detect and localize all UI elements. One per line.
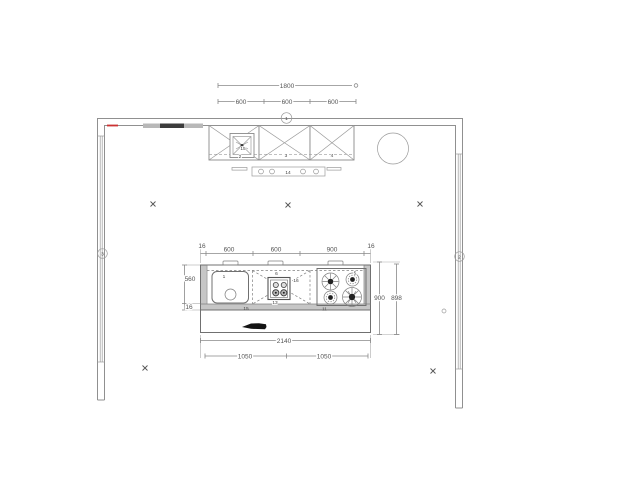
dim-text-600-b: 600: [282, 99, 293, 106]
upper-cabinet-row[interactable]: 15 2 3 4 14: [209, 126, 354, 177]
mid-unit-number: 6: [275, 271, 278, 277]
spot-cross[interactable]: [151, 202, 156, 207]
dial-center: [283, 292, 285, 294]
wall-1-number: 1: [285, 116, 288, 122]
mid-appliance-symbol[interactable]: [268, 278, 290, 300]
hood-knob: [259, 169, 264, 174]
sink[interactable]: 1: [212, 272, 249, 304]
worktop-left-number: 15: [243, 306, 249, 312]
under-cabinet-light-right[interactable]: [327, 168, 341, 171]
cooktop[interactable]: 5: [317, 269, 366, 307]
cabinet-3-number: 4: [331, 153, 334, 159]
wall-3-number: 3: [101, 252, 104, 258]
burner-center: [328, 279, 334, 285]
cabinet-widths-dimension[interactable]: 600 600 600: [218, 99, 356, 106]
spot-cross[interactable]: [143, 366, 148, 371]
drawer-handle[interactable]: [328, 261, 343, 265]
burner-center: [349, 294, 355, 300]
dim-16-right: 16: [367, 243, 375, 250]
spot-cross[interactable]: [418, 202, 423, 207]
island-bar-counter[interactable]: [201, 310, 371, 333]
spot-cross[interactable]: [286, 203, 291, 208]
mid-unit-bottom-number: 13: [272, 300, 278, 306]
room-walls[interactable]: [97, 119, 463, 409]
dim-900: 900: [327, 247, 338, 254]
kitchen-island[interactable]: 1 6 16 13: [201, 261, 371, 333]
cad-canvas: 1800 600 600 600: [0, 0, 640, 480]
burner-center: [350, 277, 355, 282]
hood-knob: [270, 169, 275, 174]
spot-cross[interactable]: [431, 369, 436, 374]
hood-item-number: 14: [285, 170, 291, 176]
cabinet-1-number: 2: [239, 154, 242, 160]
appliance-dial: [281, 282, 286, 287]
dim-16-edge: 16: [185, 304, 193, 311]
dim-text-1800: 1800: [280, 83, 295, 90]
island-left-dimension[interactable]: 560 16: [182, 265, 200, 311]
island-top-dimension[interactable]: 16 600 600 900 16: [198, 243, 375, 263]
dim-1050-a: 1050: [238, 353, 253, 360]
wall-2-number: 2: [458, 255, 461, 261]
dial-center: [275, 292, 277, 294]
cooker-hood[interactable]: 14: [252, 167, 325, 176]
island-mid-section[interactable]: 6 16 13: [253, 271, 311, 307]
dim-2140: 2140: [277, 338, 292, 345]
mid-unit-right-number: 16: [293, 278, 299, 284]
left-window-wall[interactable]: [98, 119, 105, 401]
dim-600-b: 600: [271, 247, 282, 254]
hood-knob: [301, 169, 306, 174]
overall-width-dimension[interactable]: 1800: [218, 83, 358, 90]
right-window-wall[interactable]: [456, 119, 463, 409]
worktop-right-number: 11: [322, 307, 327, 313]
vent-item-number: 15: [240, 146, 246, 152]
island-right-dimensions[interactable]: 900 898: [373, 262, 402, 335]
worktop-edge-bottom: [201, 304, 371, 310]
dim-text-600-c: 600: [328, 99, 339, 106]
dim-900-right: 900: [374, 295, 385, 302]
dim-600-a: 600: [224, 247, 235, 254]
pendant-light-circle[interactable]: [378, 133, 409, 164]
extractor-vent-symbol[interactable]: 15: [230, 134, 254, 158]
hood-knob: [314, 169, 319, 174]
drawer-handle[interactable]: [223, 261, 238, 265]
drawer-handle[interactable]: [268, 261, 283, 265]
sink-item-number: 1: [223, 274, 226, 280]
worktop-edge-right: [364, 265, 371, 310]
island-bottom-dimensions[interactable]: 2140 1050 1050: [201, 335, 371, 360]
dark-utensil-object[interactable]: [242, 323, 267, 329]
floor-plan-drawing: 1800 600 600 600: [0, 0, 640, 480]
appliance-dial: [273, 282, 278, 287]
ceiling-spot-symbols: [143, 202, 447, 374]
dim-1050-b: 1050: [317, 353, 332, 360]
dim-560: 560: [185, 276, 196, 283]
dim-898: 898: [391, 295, 402, 302]
outlet-symbol[interactable]: [442, 309, 446, 313]
cabinet-2-number: 3: [285, 153, 288, 159]
worktop-edge-left: [201, 265, 207, 310]
burner-center: [328, 295, 333, 300]
dim-text-600-a: 600: [236, 99, 247, 106]
wall-mounted-item-dark: [160, 124, 184, 129]
dim-16-left: 16: [198, 243, 206, 250]
under-cabinet-light-left[interactable]: [232, 168, 247, 171]
cooktop-item-number: 5: [354, 271, 357, 277]
sink-drain: [225, 289, 236, 300]
